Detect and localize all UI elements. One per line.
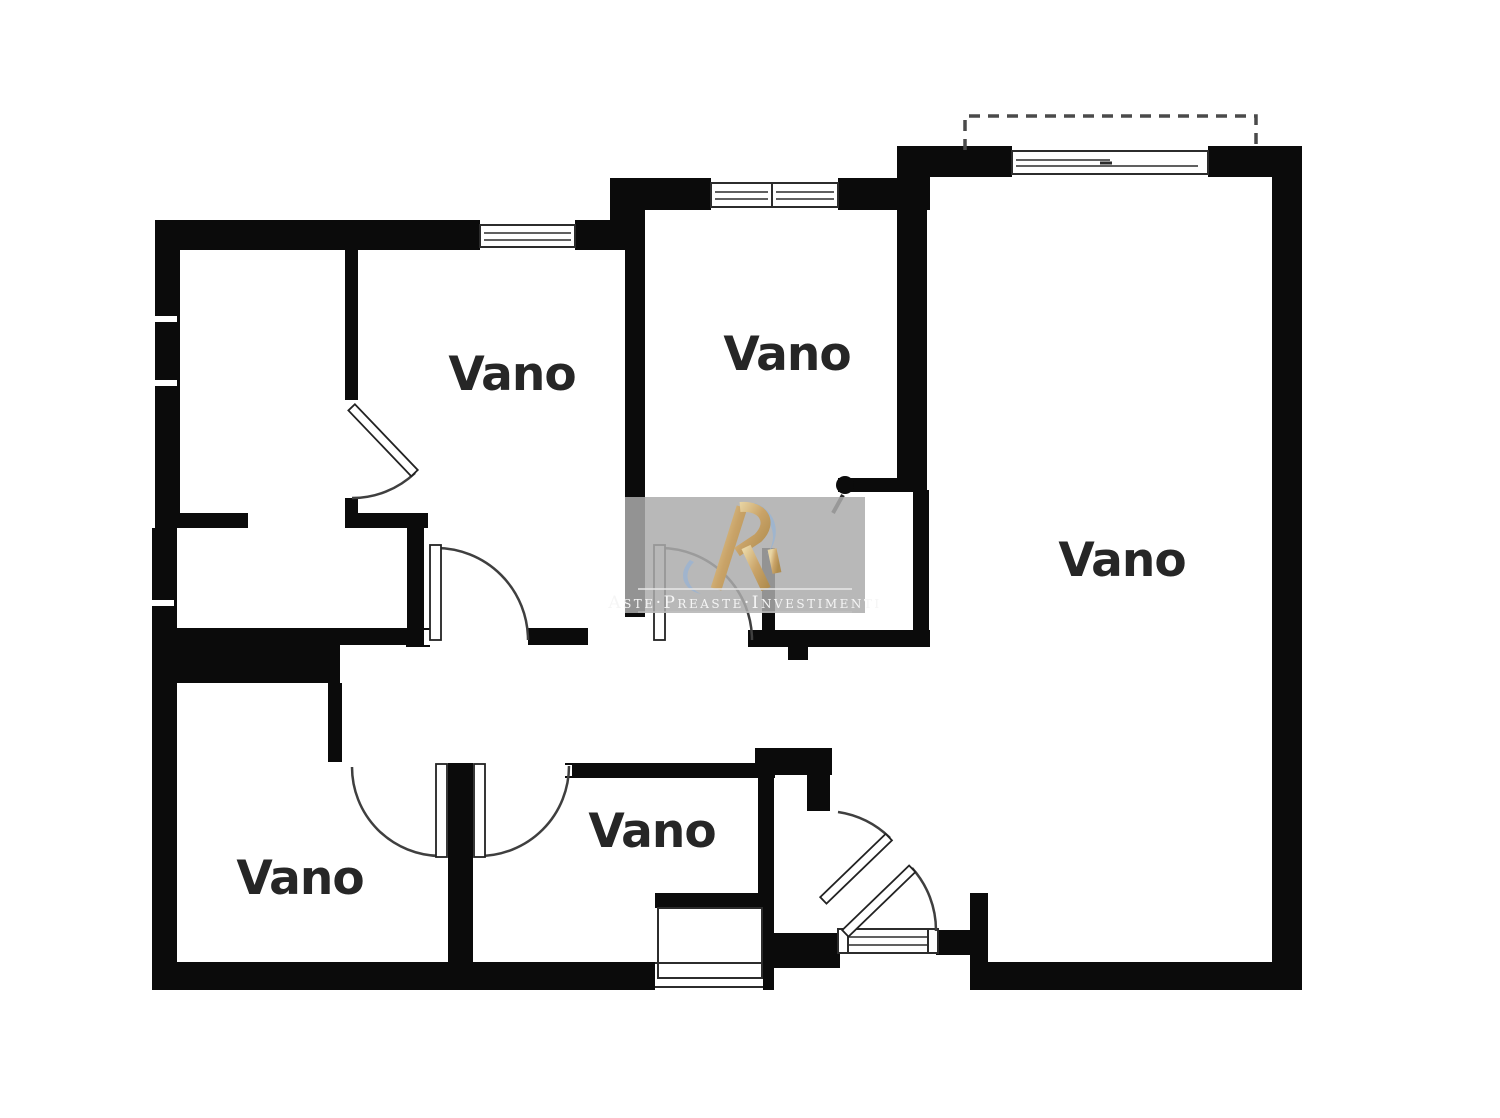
wall-segment (407, 513, 424, 630)
wall-segment (905, 146, 1012, 177)
shaft (655, 908, 763, 990)
room-labels: Vano Vano Vano Vano Vano (236, 327, 1185, 906)
door-leaf (474, 764, 485, 857)
watermark: Aste·Preaste·Investimenti (607, 497, 881, 613)
wall-segment (528, 628, 588, 645)
wall-segment (788, 645, 808, 660)
window-top-left (480, 225, 575, 247)
window-top-right (1012, 151, 1208, 174)
wall-segment (970, 893, 988, 990)
door-arc (479, 766, 569, 856)
door-arc (352, 767, 440, 856)
wall-segment (152, 962, 655, 990)
room-label: Vano (448, 347, 575, 402)
door-jambs (341, 400, 572, 776)
door-leaf (430, 545, 441, 640)
wall-segment (565, 763, 775, 778)
balcony-dashed-outline (965, 116, 1256, 150)
wall-segment (913, 490, 929, 647)
door-arc (436, 548, 528, 640)
room-label: Vano (723, 327, 850, 382)
window-top-middle (711, 183, 838, 207)
wall-segment (655, 893, 763, 908)
wall-segment (328, 683, 342, 762)
door-arc (352, 473, 415, 498)
wall-segment (345, 230, 358, 400)
jamb-cap (341, 762, 352, 773)
wall-segment (755, 748, 832, 775)
wall-segment (807, 775, 830, 811)
wall-segment (152, 528, 177, 990)
wall-segment (748, 630, 930, 647)
wall-segment (1272, 146, 1302, 990)
wall-segment (897, 177, 927, 490)
wall-segment (345, 498, 358, 514)
room-label: Vano (1058, 533, 1185, 588)
room-label: Vano (236, 851, 363, 906)
door-arc (838, 812, 890, 838)
room-label: Vano (588, 804, 715, 859)
wall-segment (610, 178, 711, 210)
wall-segment (155, 220, 180, 528)
wall-segment (975, 962, 1302, 990)
wall-segment (448, 763, 473, 964)
floor-plan-canvas: Vano Vano Vano Vano Vano Aste·Preaste·In… (0, 0, 1500, 1118)
wall-segment (155, 220, 480, 250)
door-hinge-hook (836, 476, 854, 494)
wall-segment (170, 513, 248, 528)
shaft-outline (658, 908, 762, 978)
wall-segment (340, 628, 406, 645)
watermark-text: Aste·Preaste·Investimenti (607, 593, 881, 613)
wall-segment (168, 628, 340, 683)
wall-segment (755, 933, 840, 968)
floor-plan-svg: Vano Vano Vano Vano Vano Aste·Preaste·In… (0, 0, 1500, 1118)
door-arc (912, 868, 936, 931)
door-leaf (348, 404, 417, 476)
door-leaf (436, 764, 447, 857)
